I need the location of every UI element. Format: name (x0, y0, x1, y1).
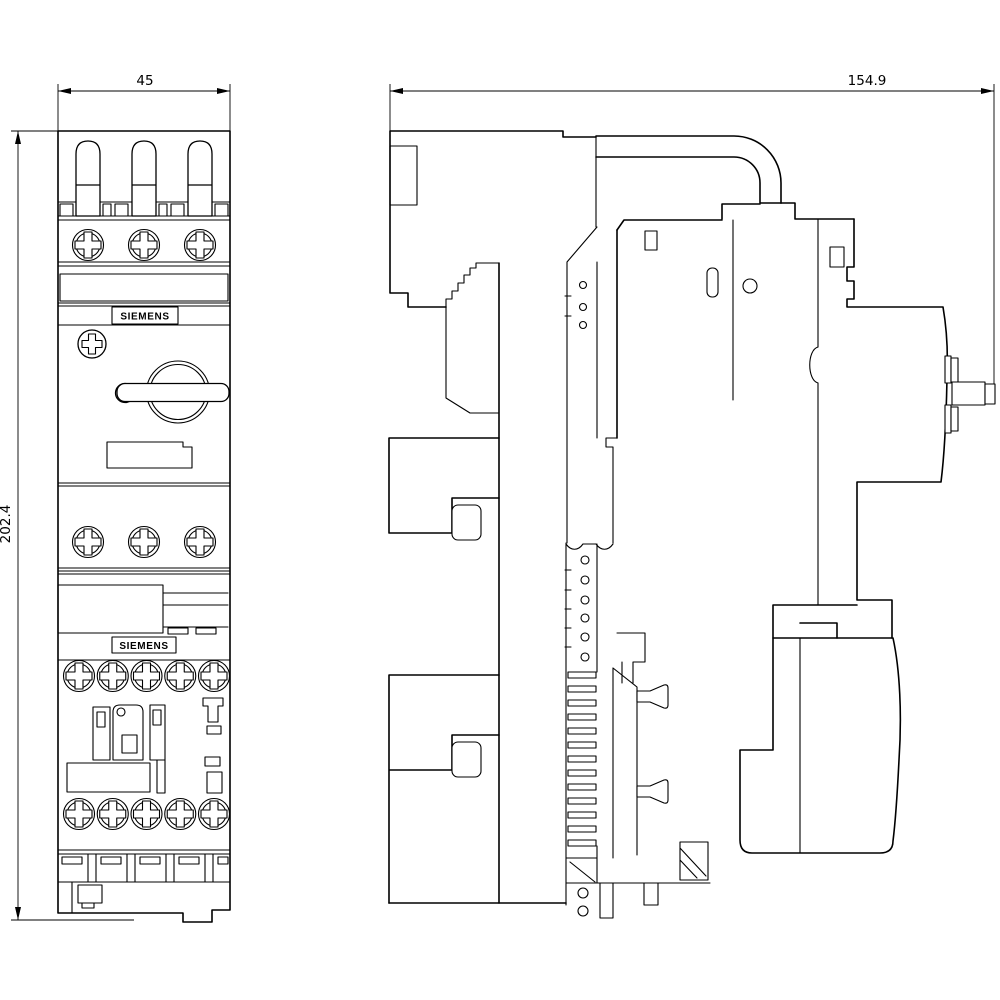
block-tab (452, 742, 481, 777)
dimension-width-side: 154.9 (390, 73, 994, 402)
mounting-block-lower (389, 675, 499, 903)
brand-label-top: SIEMENS (112, 307, 178, 324)
shaft-flange (951, 358, 958, 382)
latch-part (122, 735, 137, 753)
arrowhead (58, 88, 71, 94)
shaft-flange (945, 356, 951, 383)
terminal-prong (76, 141, 100, 216)
screw-terminal (185, 230, 216, 261)
terminal-prongs (76, 141, 212, 216)
contactor-body (740, 605, 900, 853)
latch-part (97, 712, 105, 727)
dimension-label-side-width: 154.9 (848, 73, 887, 89)
hole (581, 653, 589, 661)
hole (581, 633, 589, 641)
bracket-outline (390, 131, 596, 307)
selector-shaft (945, 356, 995, 433)
din-plate-wave (566, 544, 613, 549)
body-slot (645, 231, 657, 250)
dimensional-drawing: 45 154.9 202.4 (0, 0, 1000, 1000)
shaft-flange (951, 407, 958, 431)
screw-terminal (199, 661, 230, 692)
device-block-marks (168, 628, 216, 634)
hole (580, 282, 587, 289)
coil-pin (637, 780, 668, 803)
brand-label-bottom: SIEMENS (112, 637, 176, 653)
clip-hole (578, 888, 588, 898)
strip-edges (613, 633, 645, 858)
screw-terminal (129, 527, 160, 558)
latch-part (150, 705, 165, 760)
screw-terminal (129, 230, 160, 261)
busbar-arm (596, 136, 781, 203)
bottom-feet (72, 882, 102, 913)
device-block (58, 585, 163, 633)
body-internal-lines (733, 219, 818, 605)
body-hole (743, 279, 757, 293)
mounting-block-upper (389, 438, 499, 533)
screw-terminal (64, 661, 95, 692)
dimension-label-height: 202.4 (0, 505, 14, 544)
arrowhead (15, 907, 21, 920)
hole (580, 322, 587, 329)
marking-window (107, 442, 192, 468)
side-left-bracket (389, 131, 596, 903)
screw-terminal (165, 661, 196, 692)
body-right-profile (847, 219, 947, 638)
dimension-label-front-width: 45 (136, 73, 153, 89)
label-window (60, 274, 228, 301)
hole (581, 576, 589, 584)
coil-pin (637, 685, 668, 708)
latch-part (153, 710, 161, 725)
screw-terminals-top (73, 230, 216, 261)
coil-pin-strip (613, 633, 668, 858)
brand-text-bottom: SIEMENS (119, 641, 168, 652)
arrowhead (15, 131, 21, 144)
arrowhead (390, 88, 403, 94)
hole (581, 596, 589, 604)
latch-part (203, 698, 223, 722)
front-view: SIEMENS SIEMENS (58, 131, 230, 922)
handle-lever (117, 384, 229, 402)
aux-screws-bottom (64, 799, 230, 830)
bracket-staircase (446, 263, 499, 413)
bracket-notch (390, 146, 417, 205)
aux-screws-top (64, 661, 230, 692)
shaft-end-cap (985, 384, 995, 404)
screw-terminal (185, 527, 216, 558)
screw-terminal (97, 661, 128, 692)
latch-part (67, 763, 150, 792)
rotary-handle (116, 361, 230, 423)
hole (581, 556, 589, 564)
body-recess (810, 347, 818, 383)
screw-terminals-mid (73, 527, 216, 558)
arrowhead (217, 88, 230, 94)
brand-text-top: SIEMENS (120, 312, 169, 323)
hole (581, 614, 589, 622)
terminal-prong (188, 141, 212, 216)
adjustment-screw (78, 330, 106, 358)
screw-terminal (165, 799, 196, 830)
side-view (389, 131, 995, 918)
breaker-body (606, 203, 947, 638)
terminal-prong (132, 141, 156, 216)
latch-part (157, 760, 165, 793)
block-tab (452, 505, 481, 540)
vent-fins (568, 672, 596, 846)
din-rail-clip (566, 842, 710, 918)
screw-terminal (73, 230, 104, 261)
screw-terminal (73, 527, 104, 558)
latch-pivot (117, 708, 125, 716)
din-plate (565, 137, 613, 858)
shaft (952, 382, 985, 405)
drawing-canvas: 45 154.9 202.4 (0, 0, 1000, 1000)
dimension-width-front: 45 (58, 73, 230, 131)
contactor-outline (740, 638, 900, 853)
clip-spring (570, 842, 708, 882)
clip-hole (578, 906, 588, 916)
terminal-block-band (62, 854, 228, 882)
band-slots (62, 857, 228, 864)
shaft-flange (945, 405, 951, 433)
foot-block (78, 885, 102, 903)
screw-terminal (131, 799, 162, 830)
band-dividers (88, 854, 213, 882)
body-neck (606, 438, 617, 543)
screw-terminal (199, 799, 230, 830)
arrowhead (981, 88, 994, 94)
foot-notch (82, 903, 94, 908)
hole (580, 304, 587, 311)
contactor-top-steps (773, 605, 857, 638)
body-slot (830, 247, 844, 267)
latch-mechanism (67, 698, 223, 793)
latch-part (207, 772, 222, 793)
din-plate-edges (566, 137, 597, 858)
screw-terminal (131, 661, 162, 692)
latch-part (205, 757, 220, 766)
screw-terminal (64, 799, 95, 830)
body-slot (707, 268, 718, 297)
busbar-outer (596, 136, 781, 203)
screw-terminal (97, 799, 128, 830)
busbar-inner (596, 157, 781, 203)
latch-part (207, 726, 221, 734)
latch-part (93, 707, 110, 760)
vent-holes (580, 282, 590, 662)
